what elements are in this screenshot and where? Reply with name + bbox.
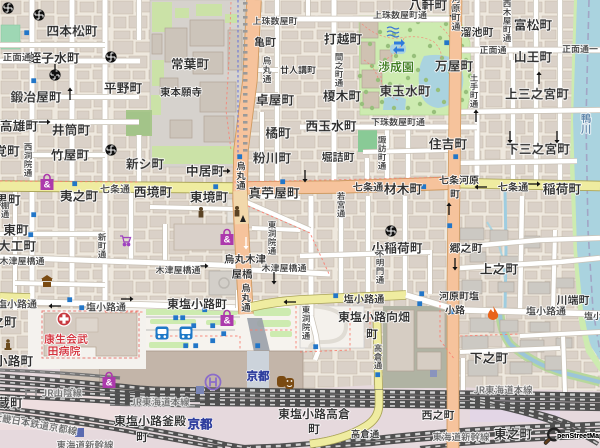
- svg-text:&: &: [106, 378, 113, 389]
- svg-text:penStreetMap: penStreetMap: [557, 433, 600, 440]
- svg-text:&: &: [224, 235, 231, 246]
- svg-text:&: &: [44, 180, 51, 191]
- svg-text:&: &: [224, 316, 231, 327]
